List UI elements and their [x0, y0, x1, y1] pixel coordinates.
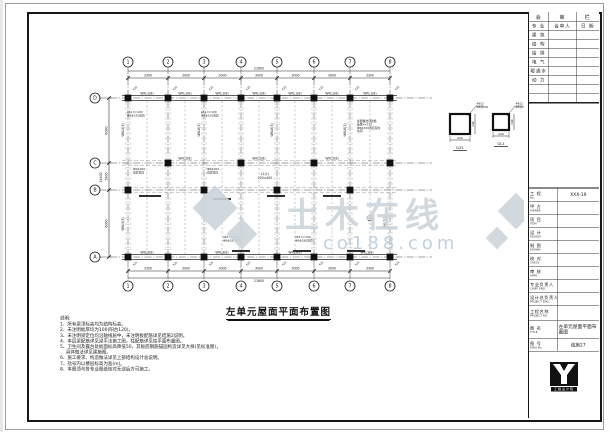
svg-text:240: 240: [471, 121, 475, 127]
svg-text:8: 8: [388, 284, 391, 290]
personnel-sublabel: CHIEF ENG.: [530, 287, 556, 290]
svg-text:KZ1: KZ1: [318, 84, 325, 91]
svg-text:240: 240: [510, 119, 514, 125]
svg-text:5: 5: [275, 284, 278, 290]
stamp-area: [529, 104, 599, 189]
svg-text:3000: 3000: [291, 74, 299, 78]
svg-text:2400: 2400: [104, 172, 108, 180]
svg-text:6000: 6000: [104, 126, 108, 134]
svg-text:WKL5(3): WKL5(3): [121, 217, 125, 230]
svg-text:WKL3(8): WKL3(8): [140, 251, 153, 255]
review-date-cell: [577, 58, 600, 67]
scanned-cad-sheet: { "sheet": { "drawing_title": "左单元屋面平面布置…: [0, 0, 610, 432]
svg-text:WKL6(3): WKL6(3): [197, 123, 201, 136]
personnel-row: 项 目ITEM: [529, 215, 599, 228]
svg-text:WKL1(8): WKL1(8): [325, 92, 338, 96]
svg-text:co188.com: co188.com: [323, 233, 458, 254]
project-name-sublabel: PROJECT NO.: [530, 315, 556, 318]
review-signer-cell: [549, 31, 577, 40]
svg-text:3: 3: [202, 284, 205, 290]
company-logo-icon: [550, 362, 578, 386]
svg-text:3300: 3300: [144, 74, 152, 78]
review-discipline-cell: 给 排: [529, 49, 549, 58]
watermark: 土木在线co188.com: [192, 185, 524, 254]
svg-text:WKL2(8): WKL2(8): [178, 157, 191, 161]
review-signer-cell: [549, 76, 577, 85]
review-signer-cell: [549, 40, 577, 49]
svg-text:Φ8@150双向: Φ8@150双向: [127, 113, 145, 117]
svg-text:6: 6: [312, 60, 315, 66]
personnel-sublabel: No.: [530, 196, 556, 199]
personnel-sublabel: DRAWN: [530, 248, 556, 251]
personnel-value: XXX-19: [558, 189, 600, 202]
svg-text:KZ1: KZ1: [281, 260, 288, 267]
review-header-cell: 栏: [577, 12, 600, 22]
personnel-value: [558, 241, 600, 254]
svg-text:3000: 3000: [255, 267, 263, 271]
svg-text:3000: 3000: [328, 74, 336, 78]
svg-text:WKL3(8): WKL3(8): [215, 251, 228, 255]
personnel-row: 设 计DESIGN: [529, 228, 599, 241]
svg-text:3000: 3000: [182, 74, 190, 78]
personnel-sublabel: PROJECT ENG.: [530, 300, 556, 303]
sheet-title-row: 图 名 TITLE 左单元屋面平面布置图: [529, 321, 599, 339]
review-signer-cell: [549, 67, 577, 76]
column-section-details: 240240GZ14Φ12Φ6@200240240GL14Φ12Φ6@200: [450, 102, 524, 151]
svg-text:GZ1: GZ1: [456, 145, 465, 150]
review-date-cell: [577, 40, 600, 49]
review-table: 会审栏专 业会审人日 期建 筑结 构给 排电 气暖通水动 力: [529, 12, 599, 104]
personnel-row: 工 程No.XXX-19: [529, 189, 599, 202]
review-date-cell: [577, 49, 600, 58]
svg-text:双层双向: 双层双向: [133, 170, 144, 174]
svg-text:D: D: [93, 96, 97, 102]
review-col-header: 专 业: [529, 22, 549, 31]
svg-text:3000: 3000: [291, 267, 299, 271]
svg-text:WKL1(8): WKL1(8): [140, 92, 153, 96]
svg-text:240: 240: [498, 132, 504, 136]
review-discipline-cell: 暖通水: [529, 67, 549, 76]
company-logo-box: 工程设计院: [529, 352, 599, 402]
svg-text:5: 5: [275, 60, 278, 66]
review-signer-cell: [549, 85, 577, 94]
svg-text:Φ6@200: Φ6@200: [477, 105, 489, 109]
review-discipline-cell: [529, 94, 549, 103]
svg-text:3000: 3000: [255, 74, 263, 78]
notes-heading: 说明:: [60, 316, 300, 322]
dwg-no-sublabel: DWG No.: [530, 346, 556, 349]
personnel-value: [558, 215, 600, 228]
svg-text:WKL3(8): WKL3(8): [288, 251, 301, 255]
review-signer-cell: [549, 49, 577, 58]
svg-text:KZ1: KZ1: [245, 84, 252, 91]
title-block: 会审栏专 业会审人日 期建 筑结 构给 排电 气暖通水动 力 工 程No.XXX…: [528, 12, 599, 418]
svg-text:4: 4: [239, 284, 242, 290]
review-discipline-cell: 建 筑: [529, 31, 549, 40]
svg-text:1: 1: [126, 60, 129, 66]
svg-text:6000: 6000: [104, 219, 108, 227]
review-signer-cell: [549, 94, 577, 103]
svg-text:3: 3: [202, 60, 205, 66]
svg-text:土木在线: 土木在线: [285, 196, 445, 236]
svg-text:WKL6(3): WKL6(3): [343, 123, 347, 136]
svg-text:3000: 3000: [182, 267, 190, 271]
dwg-no-row: 图 号 DWG No. 结施27: [529, 339, 599, 352]
svg-text:WKL2(8): WKL2(8): [252, 157, 265, 161]
svg-text:21600: 21600: [254, 279, 264, 283]
svg-text:7: 7: [348, 60, 351, 66]
project-name-value: [558, 306, 600, 321]
svg-text:2: 2: [166, 284, 169, 290]
personnel-value: [558, 293, 600, 306]
svg-text:Φ8@150双向: Φ8@150双向: [201, 113, 219, 117]
review-date-cell: [577, 67, 600, 76]
personnel-row: 设计总负责人PROJECT ENG.: [529, 293, 599, 306]
svg-text:余同: 余同: [357, 129, 363, 133]
svg-text:Φ8@180双向: Φ8@180双向: [295, 238, 313, 242]
svg-text:KZ1: KZ1: [281, 84, 288, 91]
general-notes: 说明: 1、所有梁顶标高均为结构标高。2、未注明板厚均为100(阳台120)。3…: [60, 316, 540, 429]
scan-edge-shadow: [0, 0, 3, 432]
svg-text:KZ1: KZ1: [354, 84, 361, 91]
review-discipline-cell: 电 气: [529, 58, 549, 67]
project-name-row: 工程名称 PROJECT NO.: [529, 306, 599, 322]
svg-text:WKL1(8): WKL1(8): [215, 92, 228, 96]
company-logo-text: 工程设计院: [551, 387, 577, 392]
personnel-value: [558, 267, 600, 280]
svg-text:KZ1: KZ1: [354, 260, 361, 267]
svg-text:KZ1: KZ1: [245, 260, 252, 267]
svg-text:WKL5(3): WKL5(3): [121, 123, 125, 136]
svg-text:1: 1: [126, 284, 129, 290]
svg-text:2: 2: [166, 60, 169, 66]
review-discipline-cell: [529, 85, 549, 94]
personnel-value: [558, 280, 600, 293]
personnel-sublabel: DESIGN: [530, 235, 556, 238]
review-discipline-cell: 动 力: [529, 76, 549, 85]
sheet-title-sublabel: TITLE: [530, 331, 556, 334]
review-discipline-cell: 结 构: [529, 40, 549, 49]
sheet-title-value: 左单元屋面平面布置图: [558, 321, 600, 338]
personnel-sublabel: ITEM: [530, 222, 556, 225]
svg-text:WKL1(8): WKL1(8): [252, 92, 265, 96]
svg-text:KZ1: KZ1: [394, 84, 401, 91]
personnel-value: [558, 202, 600, 215]
personnel-value: [558, 228, 600, 241]
personnel-row: 审 核APPR.: [529, 267, 599, 280]
personnel-sublabel: APPR.: [530, 274, 556, 277]
svg-text:KZ1: KZ1: [172, 84, 179, 91]
review-date-cell: [577, 85, 600, 94]
svg-text:200×400: 200×400: [258, 176, 272, 180]
personnel-row: 制 图DRAWN: [529, 241, 599, 254]
svg-text:6: 6: [312, 284, 315, 290]
personnel-sublabel: CHECK: [530, 261, 556, 264]
svg-text:KZ1: KZ1: [172, 260, 179, 267]
review-col-header: 日 期: [577, 22, 600, 31]
svg-text:WKL2(8): WKL2(8): [325, 157, 338, 161]
svg-text:7: 7: [348, 284, 351, 290]
review-header-cell: 会: [529, 12, 549, 22]
review-header-cell: 审: [549, 12, 577, 22]
svg-text:KZ1: KZ1: [394, 260, 401, 267]
svg-text:21600: 21600: [254, 67, 264, 71]
svg-text:WKL1(8): WKL1(8): [363, 92, 376, 96]
personnel-sublabel: OWNER: [530, 209, 556, 212]
svg-text:WKL1(8): WKL1(8): [288, 92, 301, 96]
svg-text:3000: 3000: [328, 267, 336, 271]
personnel-row: 校 对CHECK: [529, 254, 599, 267]
svg-text:双层双向: 双层双向: [207, 170, 218, 174]
review-signer-cell: [549, 58, 577, 67]
review-date-cell: [577, 76, 600, 85]
personnel-row: 专业负责人CHIEF ENG.: [529, 280, 599, 293]
dwg-no-value: 结施27: [558, 339, 600, 352]
svg-text:3300: 3300: [366, 267, 374, 271]
personnel-row: 甲 方OWNER: [529, 202, 599, 215]
svg-text:WKL6(3): WKL6(3): [270, 123, 274, 136]
svg-text:Φ6@200: Φ6@200: [516, 105, 525, 109]
svg-text:KZ1: KZ1: [208, 84, 215, 91]
svg-text:3300: 3300: [366, 74, 374, 78]
personnel-value: [558, 254, 600, 267]
svg-text:8: 8: [388, 60, 391, 66]
svg-text:3000: 3000: [218, 74, 226, 78]
note-line: 8、本图须与各专业图纸核对无误后方可施工。: [60, 367, 300, 373]
svg-text:KZ1: KZ1: [208, 260, 215, 267]
svg-text:KZ1: KZ1: [318, 260, 325, 267]
review-col-header: 会审人: [549, 22, 577, 31]
svg-text:3300: 3300: [144, 267, 152, 271]
svg-text:240: 240: [457, 136, 463, 140]
svg-text:GL1: GL1: [497, 141, 505, 146]
svg-text:KZ1: KZ1: [132, 260, 139, 267]
review-date-cell: [577, 31, 600, 40]
svg-text:14400: 14400: [99, 172, 103, 182]
svg-text:4: 4: [239, 60, 242, 66]
review-date-cell: [577, 94, 600, 103]
svg-text:WKL1(8): WKL1(8): [178, 92, 191, 96]
svg-text:KZ1: KZ1: [132, 84, 139, 91]
svg-text:3000: 3000: [218, 267, 226, 271]
svg-text:B: B: [93, 188, 96, 194]
